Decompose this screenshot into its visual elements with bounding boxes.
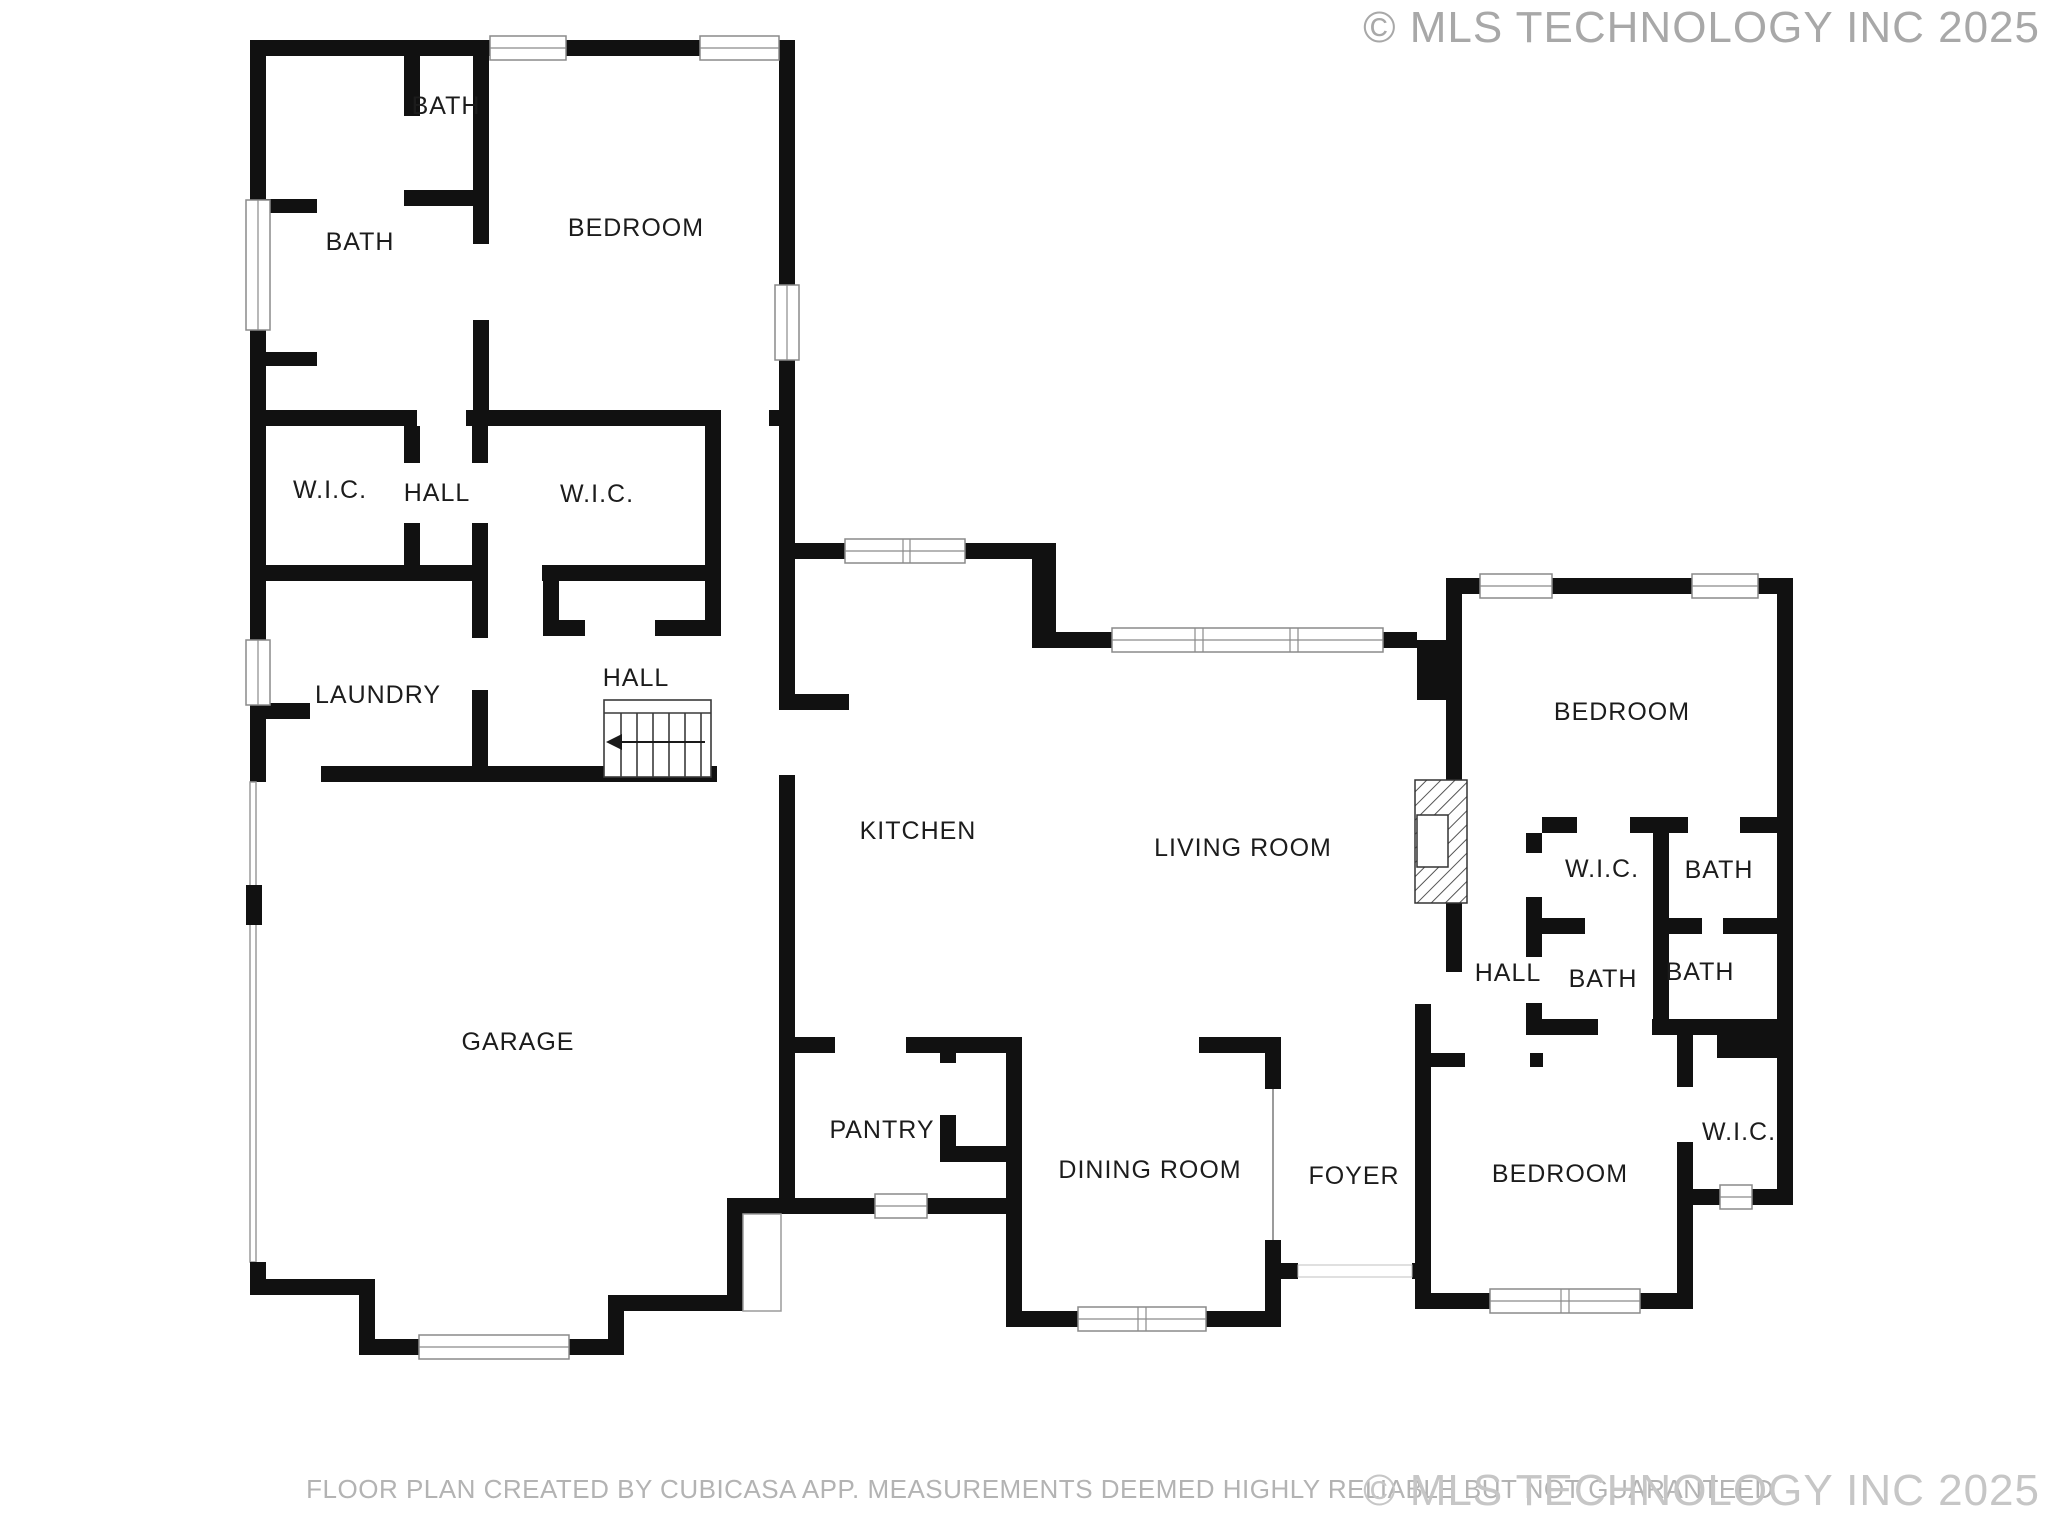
window-wic-bottom-right — [1720, 1185, 1752, 1209]
garage-left-thin-wall — [250, 782, 256, 1262]
window-bedroom-bottom-right — [1490, 1289, 1640, 1313]
room-label-hall-right: HALL — [1475, 959, 1542, 987]
room-label-hall-stairs: HALL — [603, 664, 670, 692]
room-label-hall-left: HALL — [404, 479, 471, 507]
watermark-top-right: © MLS TECHNOLOGY INC 2025 — [1363, 3, 2040, 52]
fireplace — [1415, 780, 1467, 903]
room-label-kitchen: KITCHEN — [860, 817, 977, 845]
room-label-wic-middle: W.I.C. — [560, 480, 634, 508]
room-label-wic-bottom-right: W.I.C. — [1702, 1118, 1776, 1146]
room-label-bath-right-far: BATH — [1666, 958, 1735, 986]
window-garage-bay — [419, 1335, 569, 1359]
room-label-pantry: PANTRY — [829, 1116, 934, 1144]
front-door-opening — [1298, 1265, 1412, 1277]
floor-plan-drawing: BATH BATH BEDROOM W.I.C. HALL W.I.C. LAU… — [0, 0, 2048, 1536]
window-bath-left — [246, 200, 270, 330]
window-living-room — [1112, 628, 1383, 652]
room-label-bath-small: BATH — [412, 92, 481, 120]
window-kitchen — [845, 539, 965, 563]
room-label-dining-room: DINING ROOM — [1058, 1156, 1241, 1184]
room-label-garage: GARAGE — [462, 1028, 575, 1056]
room-label-bedroom-top-left: BEDROOM — [568, 214, 704, 242]
window-bedroom-top-2 — [700, 36, 779, 60]
room-label-wic-left: W.I.C. — [293, 476, 367, 504]
room-label-wic-right: W.I.C. — [1565, 855, 1639, 883]
window-laundry-left — [246, 640, 270, 705]
window-bedroom-right-top-1 — [1480, 574, 1552, 598]
room-label-bedroom-right: BEDROOM — [1554, 698, 1690, 726]
room-label-living-room: LIVING ROOM — [1154, 834, 1332, 862]
window-bedroom-right-top-2 — [1692, 574, 1758, 598]
window-dining — [1078, 1307, 1206, 1331]
porch-outline — [743, 1214, 781, 1311]
room-label-bath-large: BATH — [326, 228, 395, 256]
watermark-bottom-right: © MLS TECHNOLOGY INC 2025 — [1363, 1466, 2040, 1515]
floor-plan-page: BATH BATH BEDROOM W.I.C. HALL W.I.C. LAU… — [0, 0, 2048, 1536]
window-bedroom-top-1 — [490, 36, 566, 60]
room-label-bath-right-top: BATH — [1685, 856, 1754, 884]
room-label-laundry: LAUNDRY — [315, 681, 441, 709]
window-pantry — [875, 1194, 927, 1218]
room-label-bath-right-middle: BATH — [1569, 965, 1638, 993]
room-label-foyer: FOYER — [1308, 1162, 1399, 1190]
room-label-bedroom-bottom-right: BEDROOM — [1492, 1160, 1628, 1188]
window-bedroom-right-wall — [775, 285, 799, 360]
garage-bay-walls — [246, 782, 1022, 1355]
staircase — [604, 700, 711, 777]
